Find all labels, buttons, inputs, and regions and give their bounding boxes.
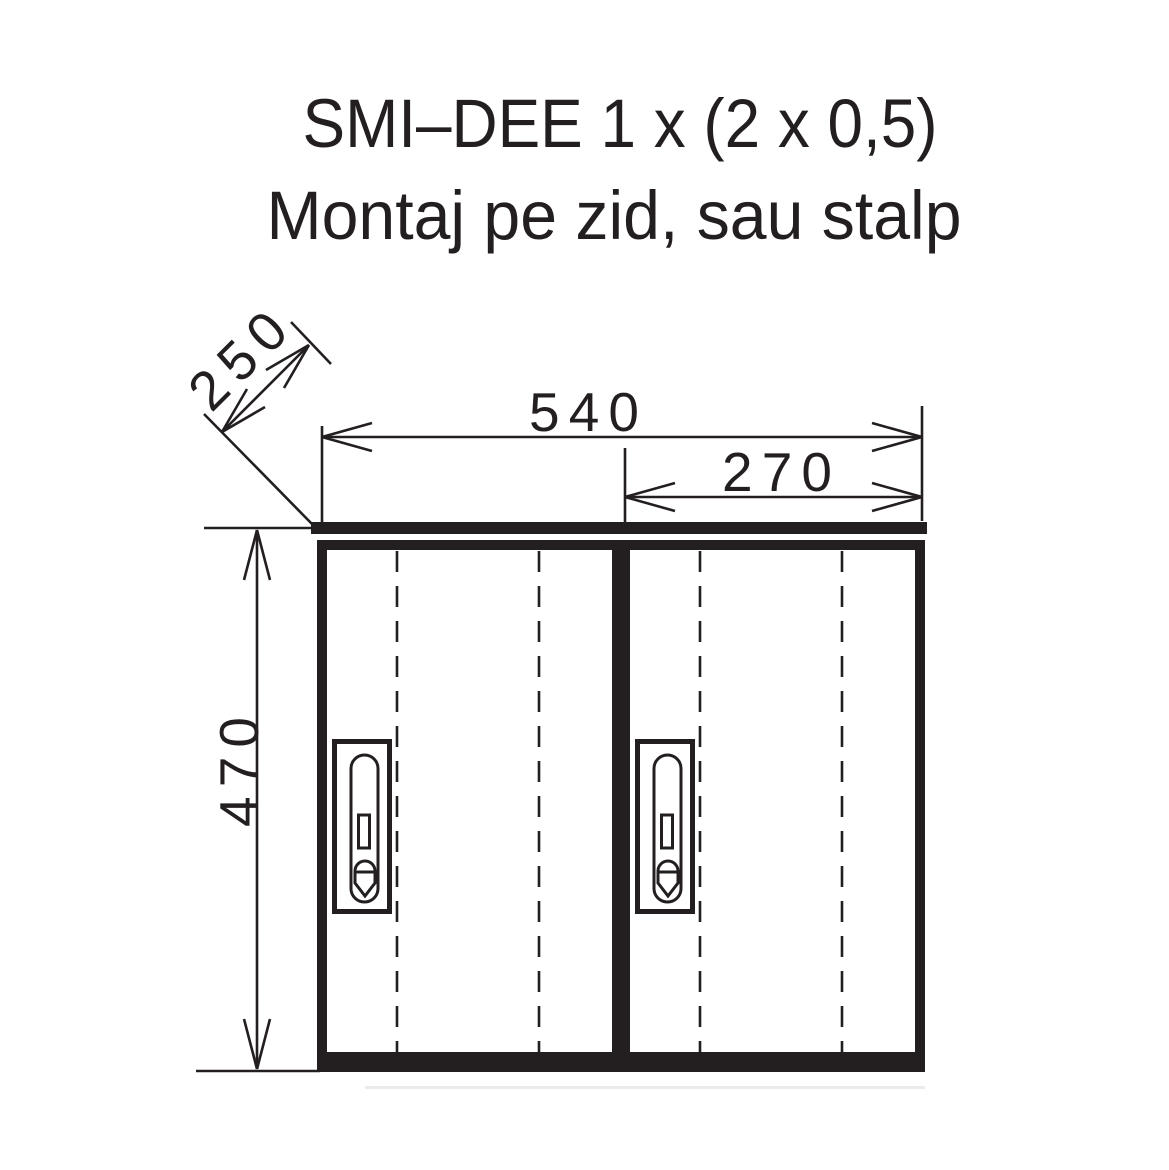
dimension-label-540: 540: [529, 381, 639, 443]
dimension-depth: 250: [176, 299, 331, 525]
dimension-label-270: 270: [722, 441, 832, 503]
dimension-door-width: 270: [625, 441, 922, 531]
enclosure-cabinet: [311, 522, 927, 1089]
dimension-height: 470: [196, 528, 320, 1071]
drawing-title: SMI–DEE 1 x (2 x 0,5): [303, 85, 938, 162]
shadow-line: [365, 1086, 925, 1089]
dimension-label-470: 470: [208, 717, 270, 827]
lock-key-slot: [359, 815, 370, 848]
dimension-overall-width: 540: [322, 381, 922, 523]
cabinet-bottom-rail: [317, 1057, 925, 1072]
lock-key-slot: [662, 815, 673, 848]
left-door-lock-handle: [335, 742, 390, 912]
technical-drawing-page: SMI–DEE 1 x (2 x 0,5) Montaj pe zid, sau…: [0, 0, 1169, 1170]
depth-edge-line: [204, 414, 313, 525]
drawing-subtitle: Montaj pe zid, sau stalp: [267, 177, 962, 254]
right-door-lock-handle: [638, 742, 693, 912]
dimension-label-250: 250: [176, 299, 299, 422]
cabinet-roof: [311, 522, 927, 534]
